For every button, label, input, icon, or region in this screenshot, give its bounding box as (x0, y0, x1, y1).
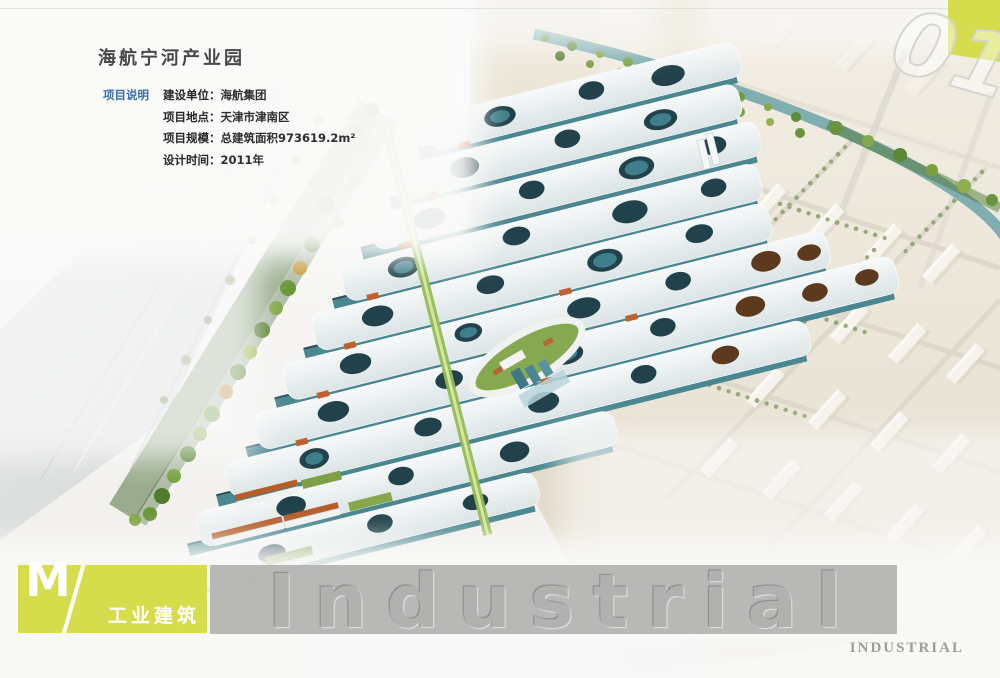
page-number-corner: 01 (850, 0, 1000, 120)
info-row-value: 海航集团 (221, 85, 267, 107)
page: 海航宁河产业园 项目说明 建设单位： 海航集团 项目地点： 天津市津南区 项目规… (0, 0, 1000, 678)
info-row-value: 总建筑面积973619.2m² (221, 128, 356, 150)
watermark-bar: Industrial (210, 565, 897, 634)
info-row-builder: 建设单位： 海航集团 (163, 85, 355, 107)
info-row-label: 项目地点： (163, 107, 221, 129)
project-info: 项目说明 建设单位： 海航集团 项目地点： 天津市津南区 项目规模： 总建筑面积… (103, 85, 355, 171)
page-title: 海航宁河产业园 (98, 44, 245, 70)
project-info-rows: 建设单位： 海航集团 项目地点： 天津市津南区 项目规模： 总建筑面积97361… (163, 85, 355, 171)
info-row-location: 项目地点： 天津市津南区 (163, 107, 355, 129)
info-row-label: 项目规模： (163, 128, 221, 150)
info-row-value: 天津市津南区 (221, 107, 290, 129)
category-label: 工业建筑 (108, 601, 200, 628)
info-row-label: 建设单位： (163, 85, 221, 107)
industrial-caption: INDUSTRIAL (850, 640, 964, 657)
info-row-value: 2011年 (221, 150, 265, 172)
info-row-scale: 项目规模： 总建筑面积973619.2m² (163, 128, 355, 150)
project-info-label: 项目说明 (103, 85, 149, 106)
logo-letter: M (25, 557, 71, 603)
page-number: 01 (881, 0, 1000, 120)
info-row-date: 设计时间： 2011年 (163, 150, 355, 172)
category-logo-block: M 工业建筑 (18, 565, 207, 633)
info-row-label: 设计时间： (163, 150, 221, 172)
watermark-text: Industrial (268, 565, 860, 634)
